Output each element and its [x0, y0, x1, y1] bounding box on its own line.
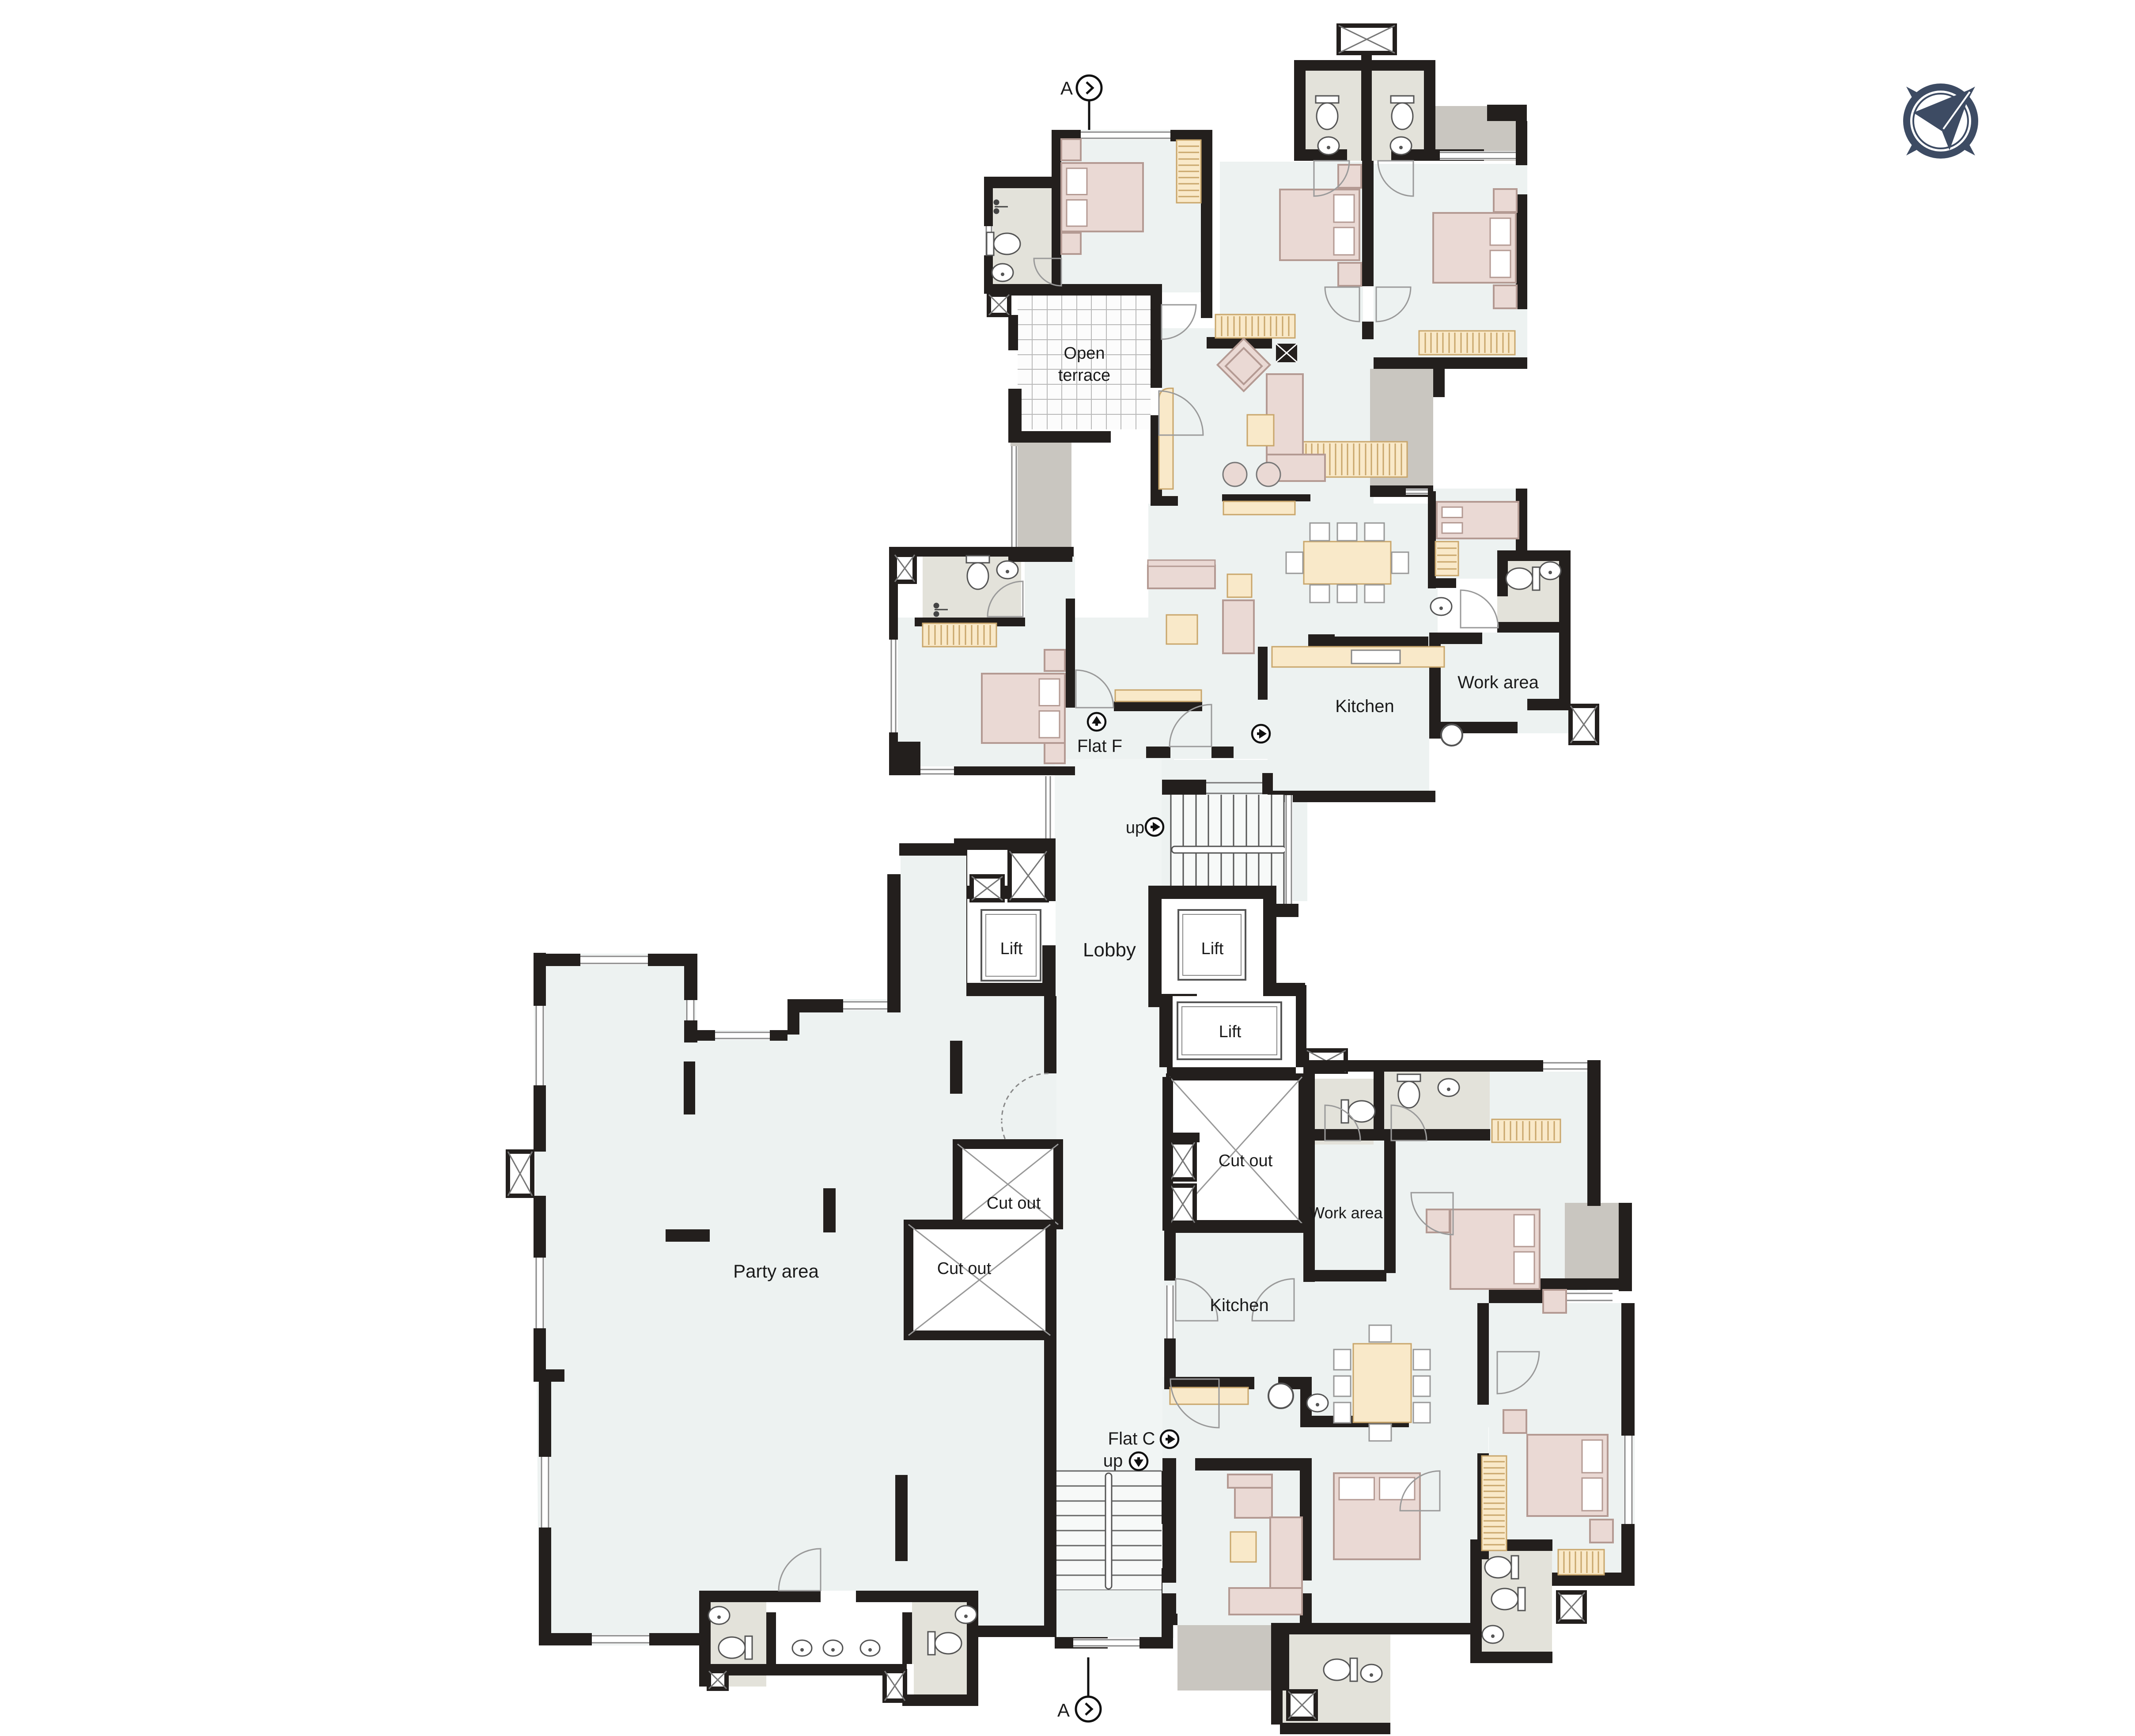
svg-text:Lobby: Lobby — [1083, 939, 1136, 961]
svg-text:Flat F: Flat F — [1077, 736, 1122, 756]
svg-text:Flat C: Flat C — [1108, 1429, 1155, 1448]
svg-text:Cut out: Cut out — [987, 1194, 1041, 1213]
svg-text:up: up — [1126, 819, 1144, 837]
svg-text:Kitchen: Kitchen — [1335, 697, 1394, 716]
svg-text:up: up — [1103, 1451, 1123, 1471]
svg-text:Party area: Party area — [733, 1261, 819, 1281]
svg-text:Lift: Lift — [1219, 1023, 1242, 1041]
svg-text:A: A — [1060, 78, 1073, 99]
svg-text:Lift: Lift — [1201, 940, 1224, 958]
svg-text:Kitchen: Kitchen — [1210, 1296, 1268, 1315]
svg-text:Work area: Work area — [1310, 1204, 1383, 1222]
svg-text:Cut out: Cut out — [1219, 1152, 1273, 1170]
svg-text:Lift: Lift — [1000, 940, 1023, 958]
svg-text:Open: Open — [1064, 344, 1105, 363]
svg-text:Cut out: Cut out — [937, 1259, 992, 1278]
svg-text:A: A — [1057, 1700, 1070, 1721]
svg-text:terrace: terrace — [1058, 366, 1110, 385]
svg-text:Work area: Work area — [1457, 673, 1539, 692]
